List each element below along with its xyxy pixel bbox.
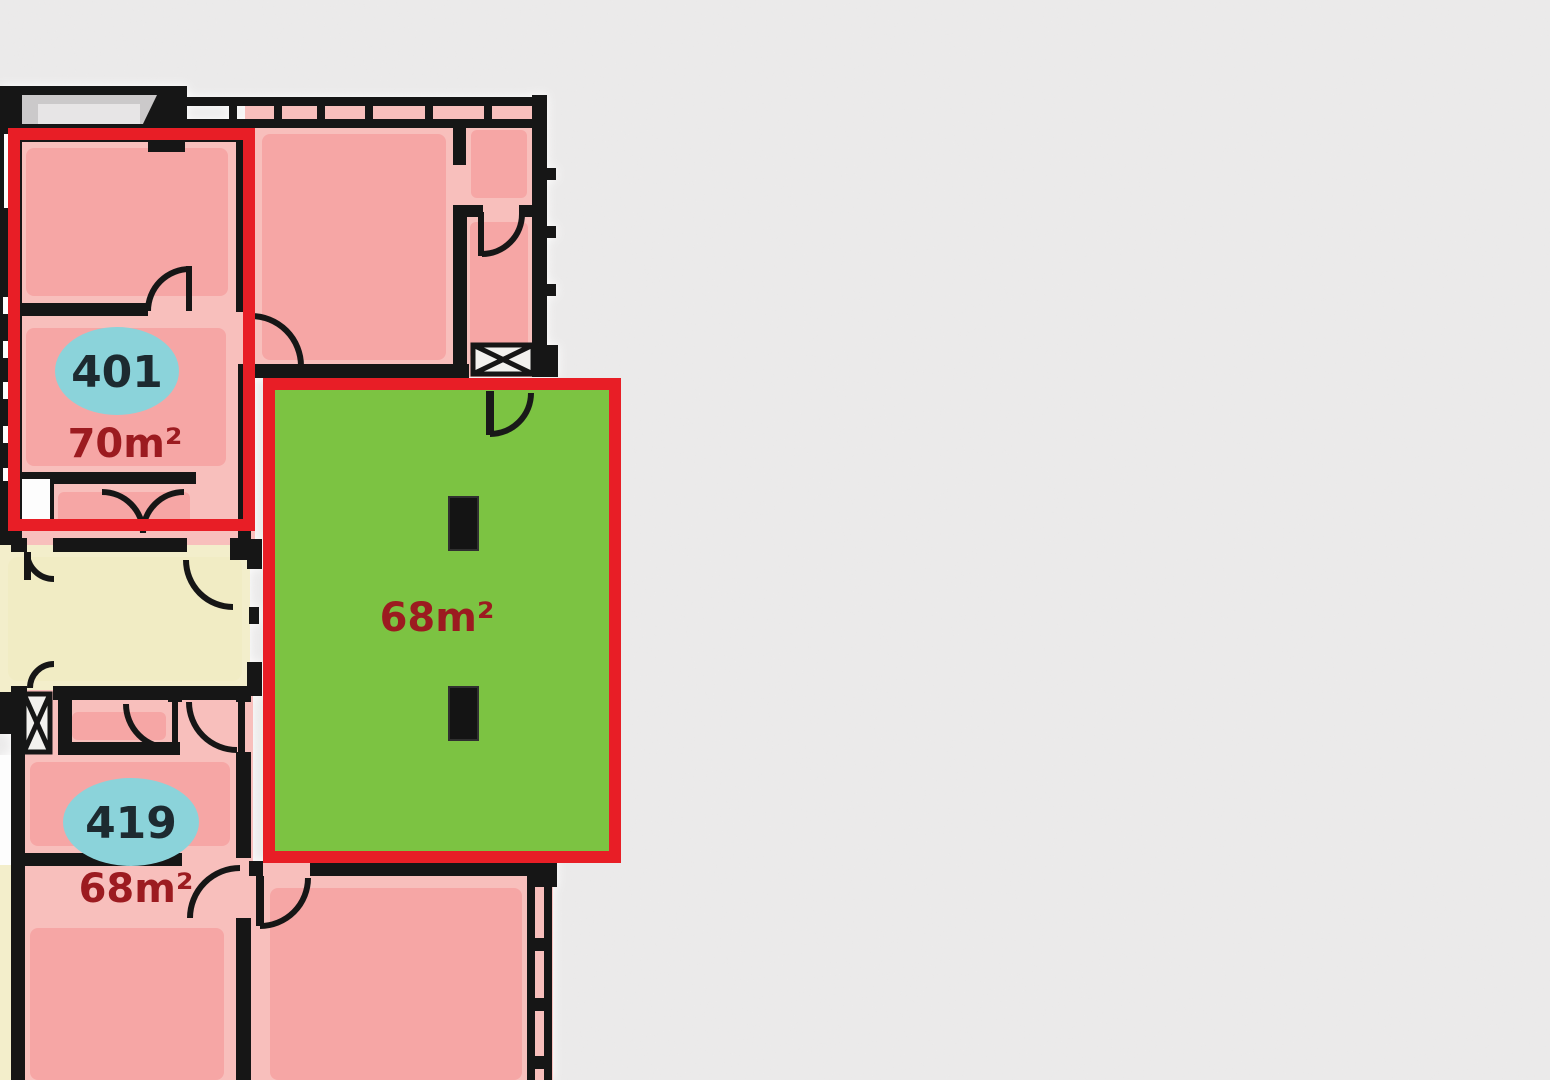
area-label-green-unit: 68m² <box>380 595 495 641</box>
panel-bottom-right-room <box>270 888 522 1080</box>
unit-401-labels: 401 70m² <box>55 327 182 467</box>
pillar-top <box>449 497 478 550</box>
pillar-bottom <box>449 687 478 740</box>
balcony <box>0 86 187 128</box>
panel-401-top-room <box>26 148 228 296</box>
door-leaf-green-entry <box>486 391 494 435</box>
panel-top-right-main <box>262 134 446 360</box>
badge-number-419: 419 <box>85 798 177 849</box>
badge-number-401: 401 <box>71 347 163 398</box>
door-leaf-419-bathroom <box>172 702 178 744</box>
panel-419-bathroom <box>72 712 166 740</box>
door-leaf-419-hall <box>238 702 245 752</box>
floor-plan-canvas: 68m² 401 70m² 419 68m² <box>0 0 1550 1080</box>
area-label-401: 70m² <box>68 421 183 467</box>
unit-419-labels: 419 68m² <box>63 778 199 912</box>
panel-top-right-upper <box>471 130 527 198</box>
window-419-left <box>0 755 11 865</box>
panel-419-bottom-room <box>30 928 224 1080</box>
area-label-419: 68m² <box>79 866 194 912</box>
door-leaf-401-interior <box>186 266 192 311</box>
door-leaf-bathroom <box>478 212 484 256</box>
highlight-unit-green[interactable]: 68m² <box>269 384 615 857</box>
door-leaf-bottom-right <box>256 876 264 926</box>
